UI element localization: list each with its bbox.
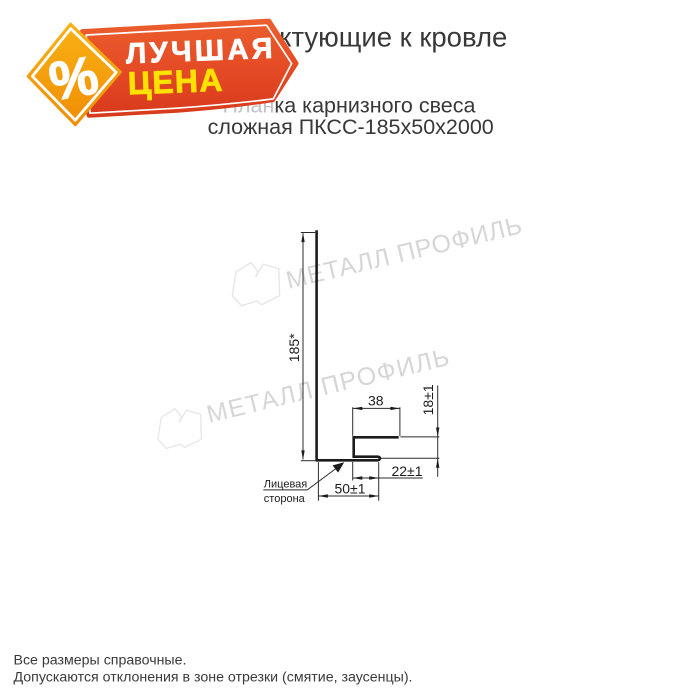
- svg-text:Лицевая: Лицевая: [264, 479, 307, 491]
- svg-text:Все размеры справочные.: Все размеры справочные.: [14, 652, 187, 668]
- svg-text:185*: 185*: [286, 333, 302, 362]
- svg-text:МЕТАЛЛ ПРОФИЛЬ: МЕТАЛЛ ПРОФИЛЬ: [204, 343, 453, 429]
- svg-text:Допускаются отклонения в зоне: Допускаются отклонения в зоне отрезки (с…: [14, 670, 413, 686]
- svg-text:МЕТАЛЛ ПРОФИЛЬ: МЕТАЛЛ ПРОФИЛЬ: [283, 211, 525, 295]
- svg-text:38: 38: [368, 392, 384, 408]
- svg-text:18±1: 18±1: [420, 384, 436, 415]
- svg-text:50±1: 50±1: [334, 481, 365, 497]
- svg-text:%: %: [45, 45, 103, 112]
- svg-text:сложная ПКСС-185х50х2000: сложная ПКСС-185х50х2000: [208, 115, 494, 139]
- svg-text:ЦЕНА: ЦЕНА: [127, 62, 224, 102]
- svg-text:22±1: 22±1: [391, 463, 422, 479]
- svg-text:сторона: сторона: [264, 493, 306, 505]
